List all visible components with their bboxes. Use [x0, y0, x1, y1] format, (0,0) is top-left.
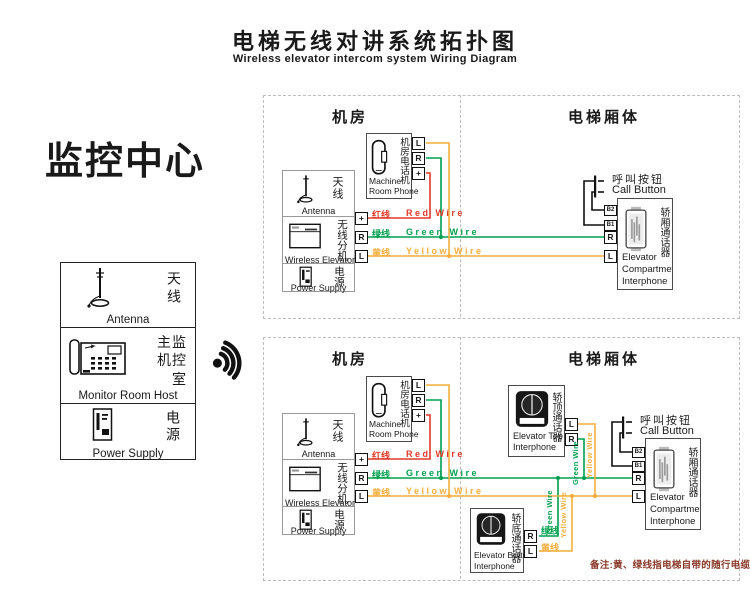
elevator-top-interphone: 轿顶通话器 Elevator Top Interphone — [508, 385, 565, 457]
terminal-r: R — [355, 472, 368, 485]
machine-room-phone-top: 机房电话机 Machine Room Phone — [366, 133, 412, 199]
antenna-icon — [295, 417, 317, 449]
monitor-host-zh: 主监 机控 室 — [157, 333, 187, 388]
desk-phone-icon — [68, 333, 128, 381]
wire-yellow-en: Yellow Wire — [406, 246, 483, 259]
section-machine-room-bottom: 机房 — [332, 348, 368, 369]
monitor-power-cell: 电源 Power Supply — [61, 403, 195, 461]
monitor-power-zh: 电源 — [165, 410, 180, 444]
speaker-icon — [476, 512, 506, 546]
terminal-l: L — [604, 250, 617, 263]
wire-label-yellow-top: 黄线Yellow Wire — [372, 246, 483, 259]
equipment-box-bottom: 天线 Antenna 无线分机 Wireless Elevator 电源 Pow… — [282, 413, 355, 535]
terminal-l: L — [412, 379, 425, 392]
monitor-host-cell: 主监 机控 室 Monitor Room Host — [61, 327, 195, 403]
wire-red-en: Red Wire — [406, 208, 465, 221]
vertical-yellow-wire-label-up: Yellow Wire — [585, 432, 594, 478]
elevator-top-interphone-en: Elevator Top Interphone — [513, 431, 563, 454]
terminal-b1: B1 — [632, 461, 645, 472]
page-title: 电梯无线对讲系统拓扑图 — [120, 24, 630, 56]
equip-antenna-cell-bottom: 天线 Antenna — [283, 414, 354, 459]
terminal-l: L — [632, 490, 645, 503]
equip-power-cell-bottom: 电源 Power Supply — [283, 506, 354, 536]
monitor-host-en: Monitor Room Host — [61, 390, 195, 402]
intercom-icon — [651, 446, 677, 492]
terminal-l: L — [355, 490, 368, 503]
yellow-wire-zh-label: 黄线 — [541, 541, 559, 554]
wire-red-zh: 红线 — [372, 208, 390, 221]
antenna-icon — [295, 174, 317, 206]
intercom-icon — [623, 206, 649, 252]
speaker-icon — [515, 390, 549, 428]
terminal-r: R — [604, 231, 617, 244]
equip-antenna-zh: 天线 — [331, 176, 343, 200]
terminal-r: R — [524, 530, 537, 543]
compartment-interphone-en: Elevator Compartmet Interphone — [650, 492, 701, 528]
wire-label-green-bottom: 绿线Green Wire — [372, 468, 479, 481]
monitor-center-heading: 监控中心 — [30, 130, 220, 185]
terminal-b2: B2 — [632, 447, 645, 458]
antenna-icon — [85, 266, 115, 312]
wireless-signal-icon — [201, 326, 258, 395]
wiring-diagram-canvas: 电梯无线对讲系统拓扑图 Wireless elevator intercom s… — [0, 0, 750, 589]
terminal-r: R — [412, 394, 425, 407]
wire-red-en: Red Wire — [406, 449, 465, 462]
section-elevator-car-bottom: 电梯厢体 — [568, 348, 640, 369]
machine-room-phone-bottom: 机房电话机 Machine Room Phone — [366, 376, 412, 442]
wire-label-green-top: 绿线Green Wire — [372, 227, 479, 240]
terminal-plus: + — [355, 453, 368, 466]
wireless-unit-icon — [287, 466, 323, 492]
monitor-antenna-en: Antenna — [61, 314, 195, 326]
compartment-interphone-en: Elevator Compartmet Interphone — [622, 252, 673, 288]
terminal-b1: B1 — [604, 220, 617, 231]
wire-yellow-zh: 黄线 — [372, 246, 390, 259]
footnote: 备注:黄、绿线指电梯自带的随行电缆 — [590, 557, 750, 571]
wire-green-en: Green Wire — [406, 468, 479, 481]
wire-yellow-en: Yellow Wire — [406, 486, 483, 499]
elevator-bottom-interphone: 轿底通话器 Elevator Bottom Interphone — [470, 508, 524, 573]
equipment-box-top: 天线 Antenna 无线分机 Wireless Elevator 电源 Pow… — [282, 170, 355, 292]
compartment-interphone-zh: 轿厢通话器 — [686, 447, 697, 497]
monitor-antenna-zh: 天线 — [166, 271, 181, 307]
terminal-l: L — [565, 418, 578, 431]
wire-red-zh: 红线 — [372, 449, 390, 462]
equip-antenna-en: Antenna — [283, 206, 354, 216]
terminal-r: R — [412, 152, 425, 165]
call-button-en: Call Button — [612, 184, 666, 196]
wire-label-yellow-bottom: 黄线Yellow Wire — [372, 486, 483, 499]
equip-antenna-cell-top: 天线 Antenna — [283, 171, 354, 216]
monitor-power-en: Power Supply — [61, 448, 195, 460]
machine-room-phone-en: Machine Room Phone — [369, 419, 419, 439]
compartment-interphone-top: 轿厢通话器 Elevator Compartmet Interphone — [617, 198, 673, 290]
equip-power-cell-top: 电源 Power Supply — [283, 263, 354, 293]
compartment-interphone-zh: 轿厢通话器 — [658, 207, 669, 257]
handset-icon — [370, 139, 390, 177]
monitor-antenna-cell: 天线 Antenna — [61, 263, 195, 327]
terminal-plus: + — [412, 167, 425, 180]
vertical-yellow-wire-label-down: Yellow Wire — [559, 492, 568, 538]
terminal-r: R — [355, 231, 368, 244]
wire-yellow-zh: 黄线 — [372, 486, 390, 499]
section-elevator-car-top: 电梯厢体 — [568, 106, 640, 127]
terminal-plus: + — [355, 212, 368, 225]
power-supply-icon — [91, 407, 115, 443]
vertical-green-wire-label-up: Green Wire — [571, 441, 580, 485]
wire-label-red-top: 红线Red Wire — [372, 208, 465, 221]
terminal-l: L — [412, 137, 425, 150]
monitor-center-box: 天线 Antenna 主监 机控 室 Monitor Room Host — [60, 262, 196, 460]
equip-power-en: Power Supply — [283, 283, 354, 293]
wire-green-en: Green Wire — [406, 227, 479, 240]
wire-green-zh: 绿线 — [372, 468, 390, 481]
terminal-b2: B2 — [604, 205, 617, 216]
equip-power-en: Power Supply — [283, 526, 354, 536]
compartment-interphone-bottom: 轿厢通话器 Elevator Compartmet Interphone — [645, 438, 701, 530]
panel-top-divider — [460, 95, 461, 317]
green-wire-zh-label: 绿线 — [541, 524, 559, 537]
terminal-r: R — [632, 472, 645, 485]
equip-antenna-en: Antenna — [283, 449, 354, 459]
terminal-plus: + — [412, 409, 425, 422]
terminal-l: L — [524, 545, 537, 558]
page-subtitle: Wireless elevator intercom system Wiring… — [120, 53, 630, 65]
wireless-unit-icon — [287, 223, 323, 249]
equip-wireless-cell-bottom: 无线分机 Wireless Elevator — [283, 459, 354, 506]
call-button-en: Call Button — [640, 425, 694, 437]
wire-label-red-bottom: 红线Red Wire — [372, 449, 465, 462]
wire-green-zh: 绿线 — [372, 227, 390, 240]
section-machine-room-top: 机房 — [332, 106, 368, 127]
terminal-l: L — [355, 250, 368, 263]
equip-antenna-zh: 天线 — [331, 419, 343, 443]
equip-wireless-cell-top: 无线分机 Wireless Elevator — [283, 216, 354, 263]
handset-icon — [370, 382, 390, 420]
